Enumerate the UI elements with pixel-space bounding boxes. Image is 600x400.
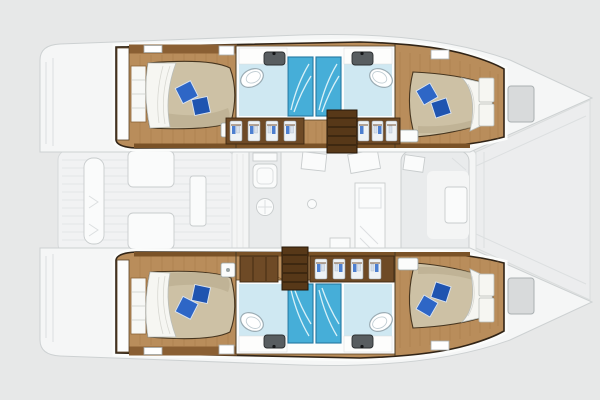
stern-seat [84, 158, 104, 244]
locker-cabinet [240, 256, 278, 282]
galley [249, 152, 281, 254]
cockpit-table [190, 176, 206, 226]
companionway-stairs [282, 247, 308, 290]
salon-seat-aft [301, 152, 327, 171]
companionway-stairs [327, 110, 357, 153]
salon [232, 150, 476, 259]
floorplan-canvas [0, 0, 600, 400]
stairs [282, 247, 308, 290]
dinette [401, 151, 469, 259]
catamaran-floorplan [0, 0, 600, 400]
dinette-table [445, 187, 467, 223]
wardrobe-niches [358, 121, 397, 141]
dinette-cushion [403, 155, 425, 173]
galley-top [253, 153, 277, 161]
mast-base [308, 200, 317, 209]
stairs [327, 110, 357, 153]
wardrobe-row [310, 256, 394, 282]
